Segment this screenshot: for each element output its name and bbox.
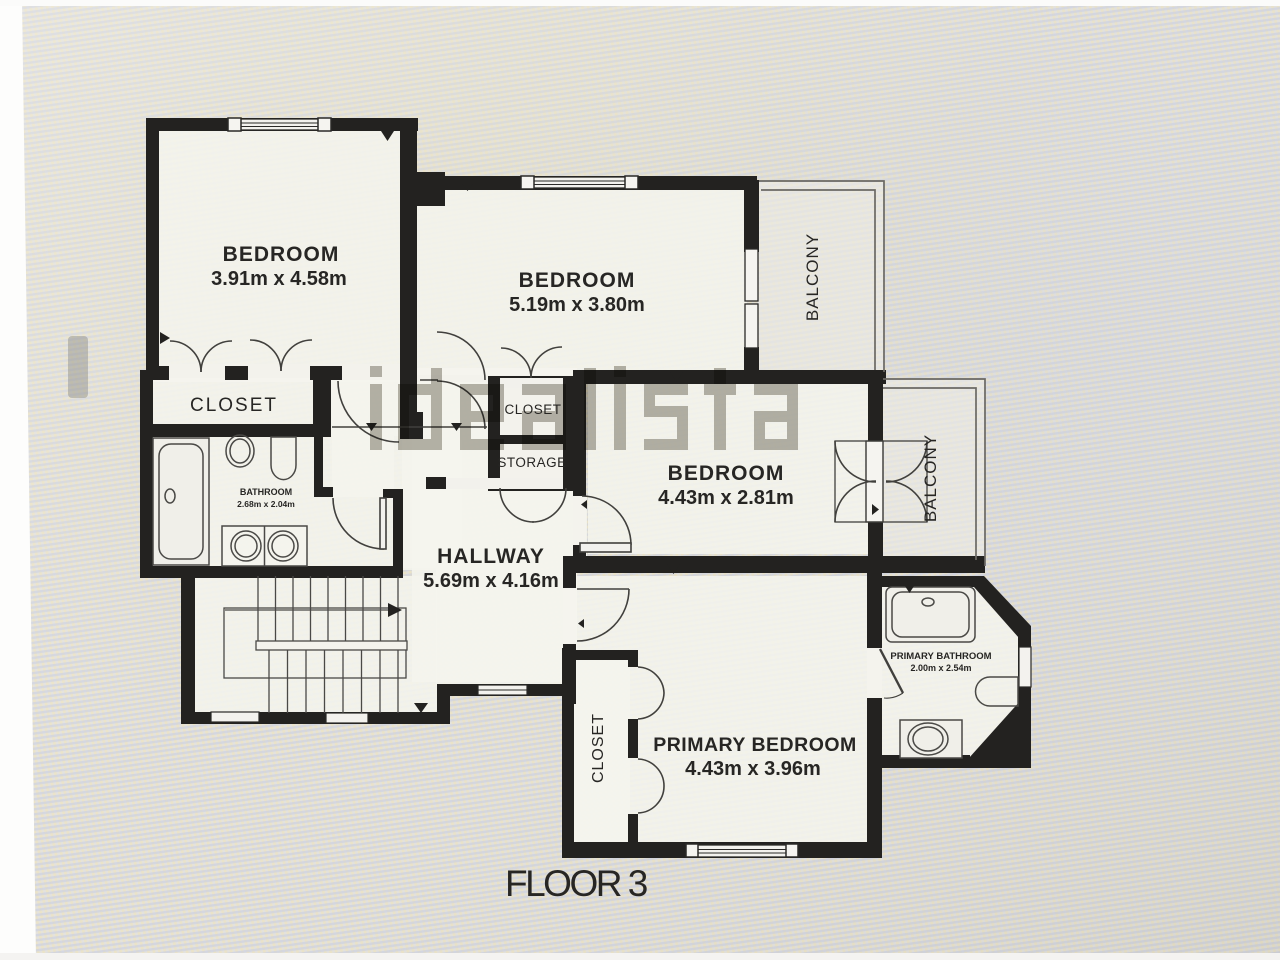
svg-text:BEDROOM: BEDROOM (668, 462, 785, 485)
svg-text:4.43m x 3.96m: 4.43m x 3.96m (685, 758, 821, 780)
svg-text:BATHROOM: BATHROOM (240, 487, 292, 497)
svg-text:2.68m x 2.04m: 2.68m x 2.04m (237, 499, 295, 509)
svg-text:5.19m x 3.80m: 5.19m x 3.80m (509, 294, 645, 316)
svg-text:HALLWAY: HALLWAY (437, 545, 545, 568)
svg-text:FLOOR 3: FLOOR 3 (505, 863, 647, 904)
svg-text:BEDROOM: BEDROOM (519, 269, 636, 292)
svg-text:BALCONY: BALCONY (803, 233, 822, 321)
svg-text:BEDROOM: BEDROOM (223, 243, 340, 266)
svg-text:STORAGE: STORAGE (497, 455, 566, 470)
svg-text:5.69m x 4.16m: 5.69m x 4.16m (423, 570, 559, 592)
svg-text:2.00m x 2.54m: 2.00m x 2.54m (910, 663, 971, 673)
svg-text:4.43m x 2.81m: 4.43m x 2.81m (658, 487, 794, 509)
svg-text:PRIMARY BEDROOM: PRIMARY BEDROOM (653, 734, 857, 756)
svg-text:CLOSET: CLOSET (590, 713, 607, 783)
svg-text:CLOSET: CLOSET (190, 395, 278, 416)
svg-text:CLOSET: CLOSET (504, 402, 561, 417)
svg-text:3.91m x 4.58m: 3.91m x 4.58m (211, 268, 347, 290)
svg-text:PRIMARY BATHROOM: PRIMARY BATHROOM (890, 651, 991, 662)
svg-text:BALCONY: BALCONY (921, 434, 940, 522)
